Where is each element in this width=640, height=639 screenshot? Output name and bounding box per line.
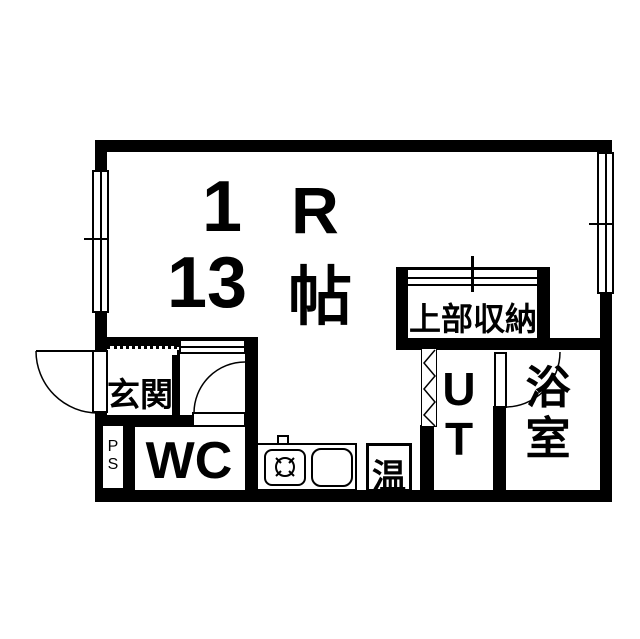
upper-storage-label: 上部収納 <box>400 294 546 340</box>
entrance-door-arc <box>36 351 98 413</box>
room-size-unit-label: 帖 <box>282 246 358 338</box>
room-size-label: 13 <box>162 242 252 324</box>
utility-label: U T <box>434 364 484 464</box>
wc-door-arc <box>194 362 245 413</box>
room-type-label: R <box>280 172 350 248</box>
room-count-label: 1 <box>187 166 257 248</box>
entrance-label: 玄関 <box>104 368 176 416</box>
floor-plan: 1 R 13 帖 玄関 WC P S 温 U T 浴 室 上部収納 <box>0 0 640 639</box>
pipe-space-label: P S <box>103 438 123 474</box>
wc-label: WC <box>133 431 245 491</box>
water-heater-label: 温 <box>366 449 412 498</box>
stove-burner-icon <box>276 458 294 476</box>
bathroom-label: 浴 室 <box>520 362 576 464</box>
